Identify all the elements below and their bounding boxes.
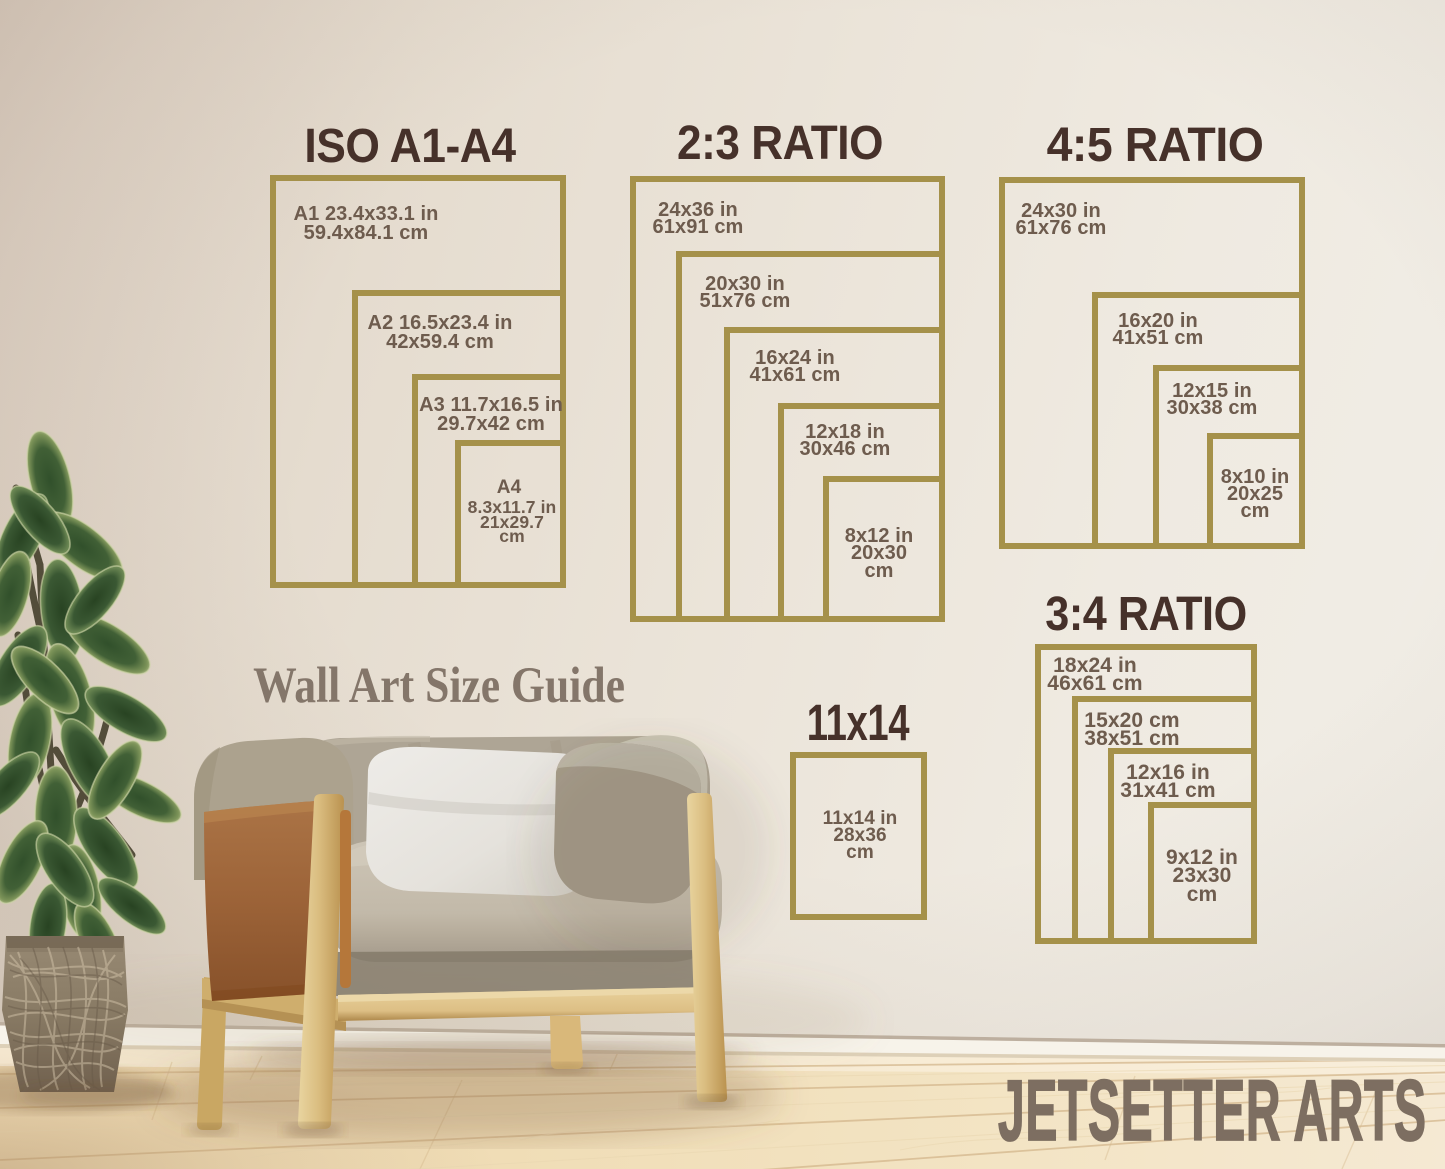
- svg-text:JETSETTER ARTS: JETSETTER ARTS: [998, 1064, 1426, 1149]
